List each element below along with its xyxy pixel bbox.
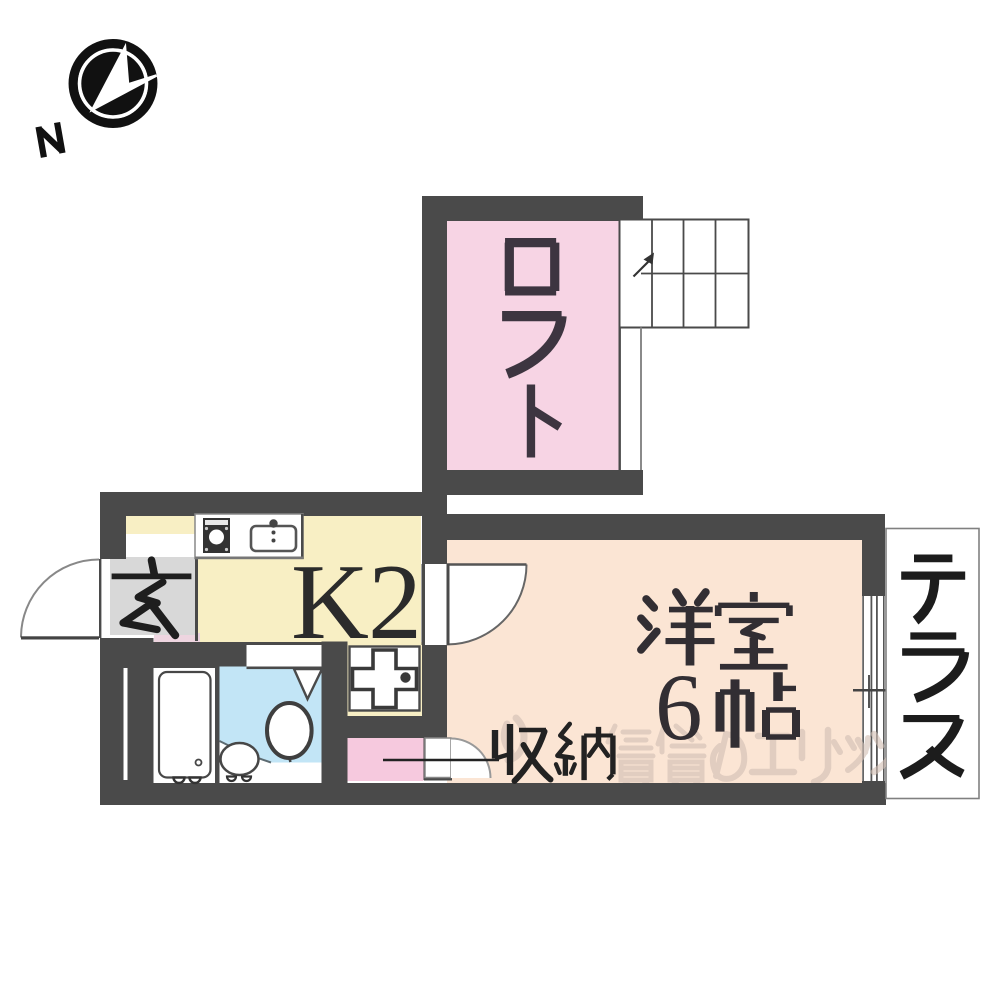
svg-text:6: 6: [655, 654, 703, 760]
svg-text:K: K: [291, 543, 369, 662]
svg-text:2: 2: [368, 543, 422, 662]
